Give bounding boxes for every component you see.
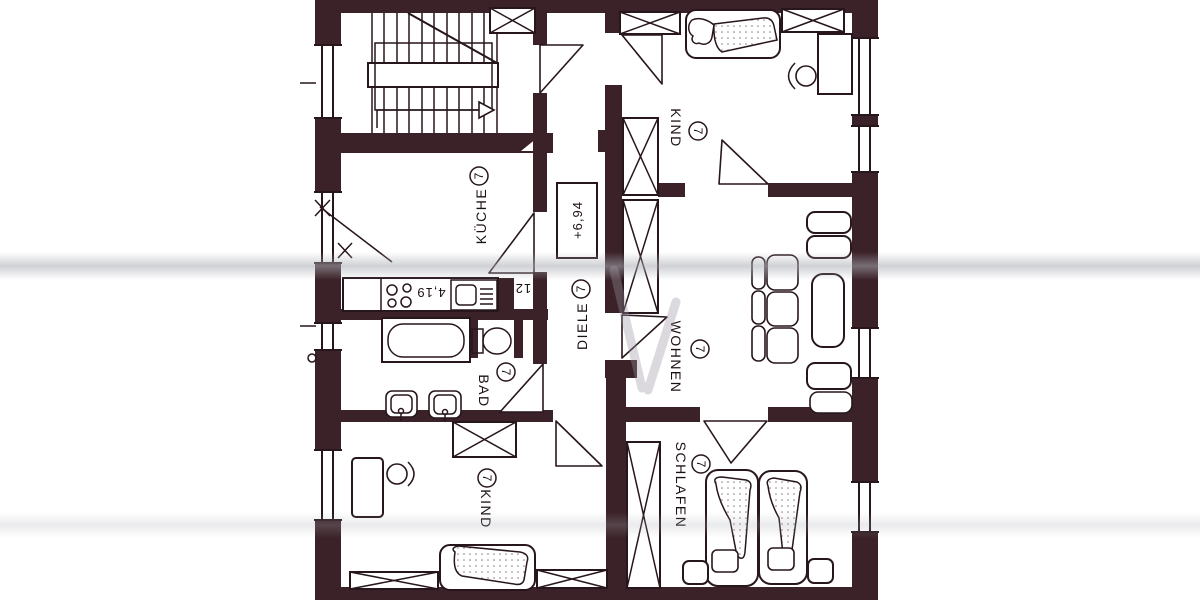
room-label-kind-top: KIND [668, 108, 684, 147]
washbasin-symbol [429, 391, 461, 422]
unit-badge-diele: 7 [572, 280, 590, 298]
scanner-glare-band [0, 252, 1200, 280]
unit-number: 7 [693, 346, 707, 353]
window-symbol [851, 328, 879, 378]
wall-spine-2 [605, 85, 622, 132]
armchair-symbol [807, 363, 852, 413]
radiator-symbol [350, 572, 438, 589]
sideboard-symbol [807, 212, 851, 233]
chair-symbol [796, 66, 816, 86]
scan-marks [300, 83, 392, 362]
unit-badge-kind-top: 7 [689, 122, 707, 140]
unit-number: 7 [472, 172, 486, 179]
door-swing-kind-wohnen [719, 140, 768, 184]
window-symbol [314, 450, 342, 520]
window-symbol [314, 45, 342, 118]
wardrobe-symbol [782, 9, 844, 32]
room-label-kueche: KÜCHE [472, 188, 489, 245]
door-swing-entrance [540, 45, 583, 93]
window-symbol [314, 323, 342, 350]
wall-kitchen-right [533, 153, 547, 212]
bed-symbol [686, 10, 780, 58]
coffee-table-symbol [812, 274, 844, 347]
unit-number: 7 [499, 369, 513, 376]
door-swing-kind-bottom [556, 421, 602, 466]
wall-kind-wohnen-a [658, 183, 685, 197]
wall-bath-right [533, 320, 547, 364]
chair-symbol [387, 464, 407, 484]
wall-kind-wohnen-b [768, 183, 878, 197]
desk-symbol [789, 34, 853, 94]
unit-number: 7 [691, 128, 705, 135]
level-marker: +6,94 [557, 183, 597, 258]
pillow-outline [712, 550, 738, 572]
room-label-diele: DIELE [574, 302, 590, 350]
scanner-glare-band [0, 512, 1200, 538]
wall-bath-stub-right [514, 319, 523, 358]
window-symbol [851, 38, 879, 115]
kitchen-dimension-text: 4,19 [416, 285, 445, 300]
stair-landing [368, 63, 498, 87]
radiator-symbol [537, 570, 607, 588]
unit-number: 7 [574, 285, 588, 292]
washbasin-symbol [386, 391, 417, 421]
wardrobe-symbol [490, 8, 535, 33]
unit-number: 7 [694, 461, 708, 468]
wall-entry-lower [533, 93, 547, 153]
floor-plan-drawing: +6,94 KÜCHE 7 DIELE 7 WOHNEN 7 BAD 7 KIN… [0, 0, 1200, 600]
pillow-outline [768, 548, 794, 570]
scan-dot-mark [308, 354, 316, 362]
wall-wohnen-schlafen-a [622, 407, 700, 422]
wall-stair-kitchen [341, 133, 553, 153]
unit-badge-bad: 7 [497, 363, 515, 381]
unit-badge-schlafen: 7 [692, 455, 710, 473]
wardrobe-symbol [623, 118, 658, 195]
room-label-bad: BAD [476, 374, 492, 407]
shaft-number-text: 12 [515, 281, 531, 296]
unit-badge-kueche: 7 [470, 167, 488, 185]
staircase-symbol [368, 13, 498, 133]
bathtub-symbol [382, 318, 470, 362]
window-symbol [851, 126, 879, 172]
nightstand-symbol [808, 559, 833, 583]
door-swing-kind-top [622, 35, 662, 84]
nightstand-symbol [683, 561, 708, 584]
stair-direction-line [377, 110, 479, 128]
desk-symbol [352, 458, 414, 517]
wardrobe-symbol [620, 12, 680, 34]
level-marker-text: +6,94 [570, 201, 585, 239]
bed-symbol [440, 545, 535, 590]
wall-stub [598, 130, 622, 152]
floor-plan-scan: +6,94 KÜCHE 7 DIELE 7 WOHNEN 7 BAD 7 KIN… [0, 0, 1200, 600]
wall-counter-stub [498, 278, 514, 312]
unit-badge-wohnen: 7 [691, 340, 709, 358]
wardrobe-symbol [453, 422, 516, 457]
door-swing-schlafen [704, 421, 767, 463]
unit-badge-kind-bottom: 7 [478, 469, 496, 487]
unit-number: 7 [480, 475, 494, 482]
